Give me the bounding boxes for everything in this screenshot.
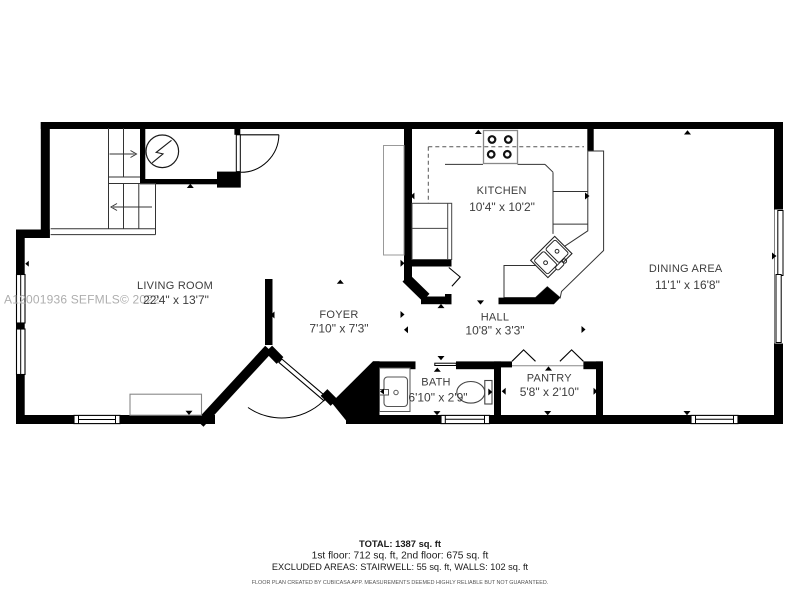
svg-text:11'1" x 16'8": 11'1" x 16'8"	[655, 278, 720, 292]
svg-text:BATH: BATH	[421, 377, 451, 389]
svg-text:10'8" x 3'3": 10'8" x 3'3"	[465, 324, 524, 338]
svg-text:6'10" x 2'9": 6'10" x 2'9"	[408, 391, 467, 405]
svg-text:HALL: HALL	[481, 312, 510, 324]
svg-text:EXCLUDED AREAS: STAIRWELL: 55: EXCLUDED AREAS: STAIRWELL: 55 sq. ft, WA…	[272, 562, 529, 572]
svg-text:22'4" x 13'7": 22'4" x 13'7"	[143, 293, 209, 307]
svg-text:5'8" x 2'10": 5'8" x 2'10"	[520, 385, 579, 399]
svg-text:DINING AREA: DINING AREA	[649, 263, 723, 275]
svg-text:A12001936 SEFMLS© 2022: A12001936 SEFMLS© 2022	[4, 293, 160, 307]
svg-text:LIVING ROOM: LIVING ROOM	[137, 280, 213, 292]
svg-text:1st floor: 712 sq. ft, 2nd flo: 1st floor: 712 sq. ft, 2nd floor: 675 sq…	[312, 551, 489, 562]
svg-text:FOYER: FOYER	[319, 309, 358, 321]
svg-text:7'10" x 7'3": 7'10" x 7'3"	[309, 322, 368, 336]
svg-text:KITCHEN: KITCHEN	[477, 185, 527, 197]
svg-text:PANTRY: PANTRY	[527, 373, 573, 385]
svg-text:TOTAL: 1387 sq. ft: TOTAL: 1387 sq. ft	[359, 538, 441, 549]
svg-text:FLOOR PLAN CREATED BY CUBICASA: FLOOR PLAN CREATED BY CUBICASA APP. MEAS…	[252, 580, 548, 586]
svg-text:10'4" x 10'2": 10'4" x 10'2"	[469, 200, 535, 214]
